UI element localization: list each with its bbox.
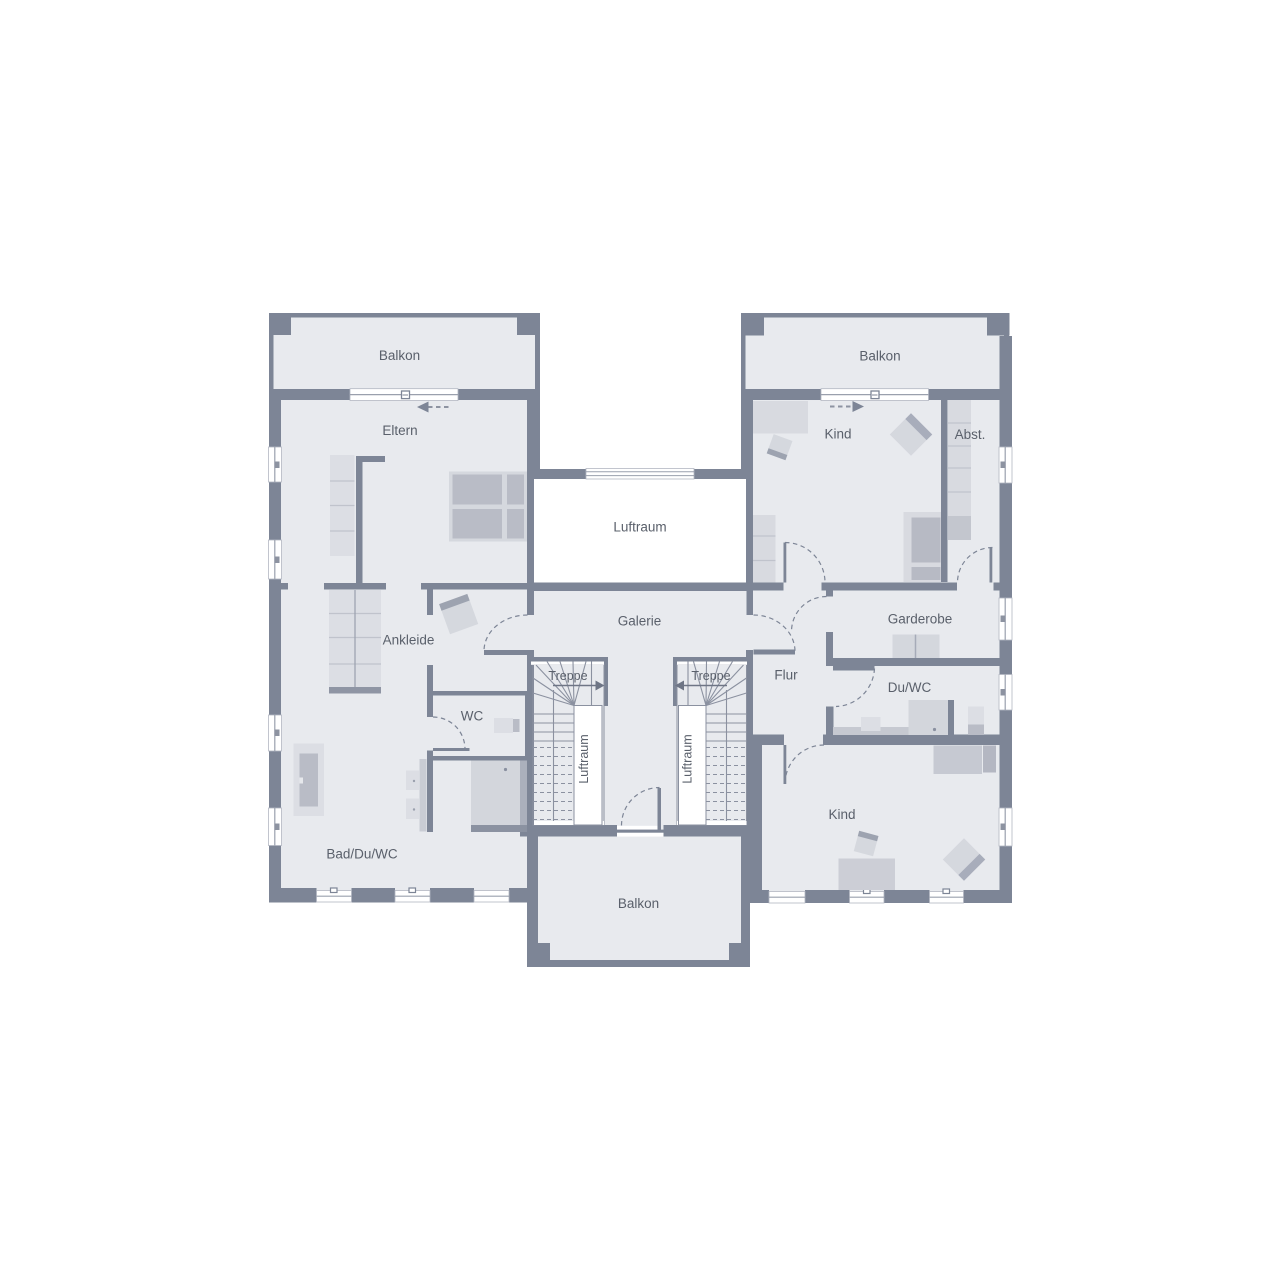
svg-text:Kind: Kind [828, 807, 855, 822]
svg-text:Treppe: Treppe [691, 669, 730, 683]
svg-text:Luftraum: Luftraum [681, 734, 695, 783]
svg-text:Du/WC: Du/WC [888, 680, 932, 695]
svg-text:Galerie: Galerie [618, 614, 662, 629]
svg-text:Kind: Kind [824, 427, 851, 442]
svg-text:Balkon: Balkon [379, 348, 420, 363]
svg-text:Ankleide: Ankleide [383, 633, 435, 648]
svg-text:Abst.: Abst. [955, 427, 986, 442]
svg-text:WC: WC [461, 709, 484, 724]
svg-text:Garderobe: Garderobe [888, 612, 953, 627]
svg-text:Bad/Du/WC: Bad/Du/WC [326, 847, 398, 862]
svg-text:Balkon: Balkon [618, 896, 659, 911]
svg-text:Balkon: Balkon [859, 349, 900, 364]
svg-text:Luftraum: Luftraum [577, 734, 591, 783]
svg-text:Treppe: Treppe [548, 669, 587, 683]
svg-text:Eltern: Eltern [382, 423, 417, 438]
svg-text:Flur: Flur [774, 668, 798, 683]
svg-text:Luftraum: Luftraum [613, 520, 666, 535]
